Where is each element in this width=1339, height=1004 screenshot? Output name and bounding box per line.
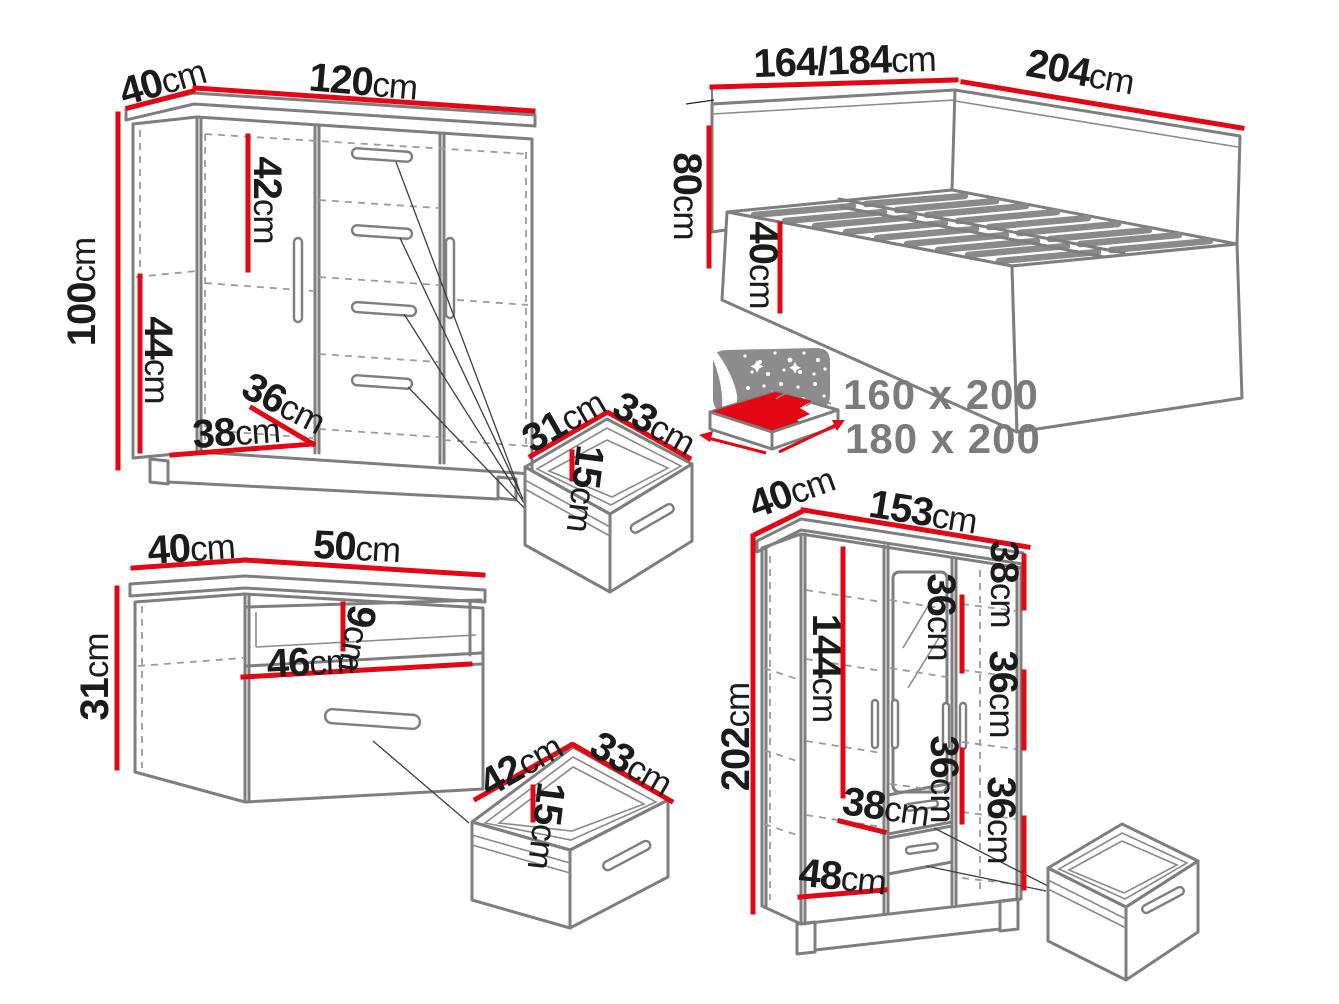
wardrobe-feet	[797, 899, 1018, 954]
dimension-label-bed-headboard-height: 80cm	[665, 152, 709, 239]
dresser-door-dividers	[315, 125, 444, 463]
dimension-label-wardrobe-hanging-section: 144cm	[804, 614, 848, 722]
wardrobe-drawer-handle-2	[906, 843, 939, 854]
dresser-feet	[150, 459, 516, 500]
dimension-label-wardrobe-top-section: 38cm	[982, 540, 1026, 627]
dimension-label-bed-width: 164/184cm	[753, 36, 937, 86]
mattress-size-option-2: 180 x 200	[845, 415, 1041, 462]
dimension-label-dresser-width: 120cm	[307, 55, 419, 108]
large-drawer-drawing: 42cm 33cm 15cm	[472, 723, 680, 928]
mattress-width-arrowhead	[699, 431, 713, 442]
nightstand-body-outline	[135, 594, 483, 802]
diagram-canvas: 40cm 120cm 100cm 42cm 44cm 36cm 38cm 164…	[0, 0, 1339, 1004]
dimension-label-wardrobe-shelf-right-1: 36cm	[981, 650, 1025, 737]
dimension-label-dresser-lower-compartment: 44cm	[136, 316, 180, 403]
dresser-interior-dashed-lines	[136, 130, 528, 448]
wardrobe-middle-door-handle-left	[892, 700, 898, 748]
corner-drawer-left-face	[1048, 868, 1126, 980]
dresser-drawer-handle-3	[352, 302, 417, 316]
dresser-drawer-handle-2	[352, 225, 413, 239]
dimension-label-nightstand-depth: 40cm	[146, 523, 236, 573]
dimension-label-dresser-height: 100cm	[60, 238, 104, 346]
dimension-label-wardrobe-width: 153cm	[866, 482, 980, 542]
dresser-drawer-handle-4	[352, 375, 413, 389]
wardrobe-drawing: 40cm 153cm 202cm 144cm 38cm 36cm 36cm 36…	[714, 456, 1048, 954]
dresser-drawer-handle-1	[352, 148, 413, 162]
mattress-size-option-1: 160 x 200	[843, 371, 1039, 418]
wardrobe-left-door-handle	[872, 700, 878, 748]
dimension-label-wardrobe-shelf-mid-1: 36cm	[919, 573, 963, 660]
nightstand-drawing: 40cm 50cm 31cm 9cm 46cm	[73, 523, 485, 823]
wardrobe-drawer-illustration	[1048, 824, 1198, 980]
dresser-drawer-pointer-lines	[396, 162, 529, 513]
nightstand-dashed-lines	[138, 606, 243, 768]
bed-foot-face	[1012, 244, 1242, 432]
furniture-dimensions-diagram: 40cm 120cm 100cm 42cm 44cm 36cm 38cm 164…	[0, 0, 1339, 1004]
dimension-label-wardrobe-shelf-right-2: 36cm	[979, 776, 1023, 863]
dimension-label-nightstand-height: 31cm	[73, 633, 117, 720]
corner-drawer-front-face	[1126, 861, 1198, 980]
dimension-label-nightstand-width: 50cm	[312, 523, 401, 572]
dimension-label-dresser-interior-width: 38cm	[191, 407, 281, 457]
dimension-label-wardrobe-bottom-interior-width: 48cm	[797, 851, 888, 904]
chest-of-drawers-drawing: 40cm 120cm 100cm 42cm 44cm 36cm 38cm	[60, 48, 535, 513]
dimension-label-large-drawer-depth: 33cm	[583, 723, 680, 805]
small-drawer-drawing: 31cm 33cm 15cm	[515, 380, 703, 592]
dresser-left-door-handle	[294, 238, 302, 322]
dimension-label-dresser-upper-compartment: 42cm	[245, 156, 289, 243]
nightstand-pointer-line	[373, 741, 469, 823]
dimension-label-wardrobe-height: 202cm	[714, 683, 758, 791]
mattress-size-icon	[699, 348, 845, 453]
nightstand-drawer-handle	[325, 709, 421, 730]
dimension-label-bed-frame-height: 40cm	[741, 221, 785, 308]
dimension-label-nightstand-interior-width: 46cm	[266, 638, 355, 687]
